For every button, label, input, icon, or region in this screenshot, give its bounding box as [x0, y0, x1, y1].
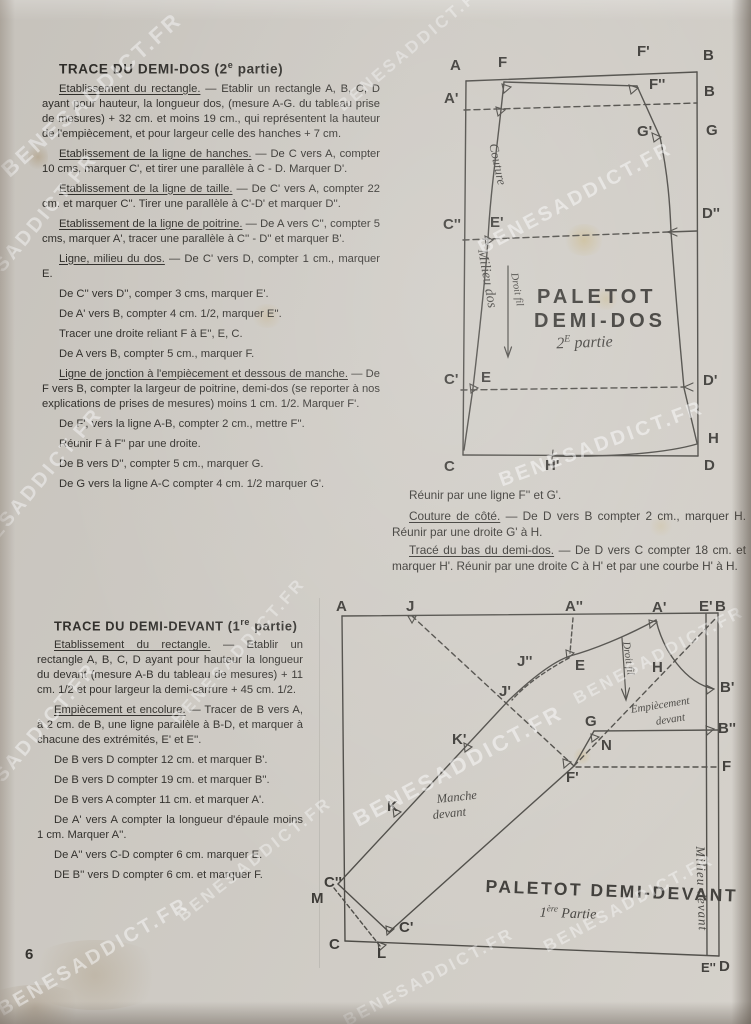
point-label: A'': [565, 600, 583, 614]
point-label: B': [720, 681, 734, 695]
point-label: E'': [701, 961, 716, 975]
point-label: G: [585, 715, 597, 729]
diagram2-labels: A J A'' A' E' B E J'' J' H G N K' K F' C…: [0, 0, 751, 1024]
point-label: A': [652, 601, 666, 615]
droit-fil-label: Droit fil: [620, 641, 636, 676]
point-label: B'': [718, 722, 736, 736]
point-label: C': [399, 921, 413, 935]
point-label: C: [329, 938, 340, 952]
milieu-devant-label: Milieu devant: [692, 846, 711, 931]
point-label: A: [336, 600, 347, 614]
diagram2-subtitle: 1ère Partie: [539, 903, 596, 924]
point-label: H: [652, 661, 663, 675]
empiecement-label-line2: devant: [655, 711, 686, 727]
point-label: L: [377, 947, 386, 961]
point-label: M: [311, 892, 324, 906]
point-label: F': [566, 771, 579, 785]
point-label: C'': [324, 876, 342, 890]
point-label: N: [601, 739, 612, 753]
point-label: E: [575, 659, 585, 673]
magazine-page: TRACE DU DEMI-DOS (2e partie) Etablissem…: [0, 0, 751, 1024]
page-number: 6: [25, 946, 33, 963]
point-label: J': [499, 685, 511, 699]
point-label: K: [387, 800, 398, 814]
point-label: B: [715, 600, 726, 614]
subtitle-sup: ère: [547, 903, 559, 913]
point-label: F: [722, 760, 731, 774]
subtitle-text: Partie: [558, 906, 597, 922]
point-label: E': [699, 600, 713, 614]
subtitle-text: 1: [539, 906, 547, 921]
point-label: J'': [517, 655, 532, 669]
point-label: D: [719, 960, 730, 974]
point-label: J: [406, 600, 414, 614]
manche-label-line1: Manche: [436, 788, 478, 807]
point-label: K': [452, 733, 466, 747]
manche-label-line2: devant: [432, 805, 467, 823]
